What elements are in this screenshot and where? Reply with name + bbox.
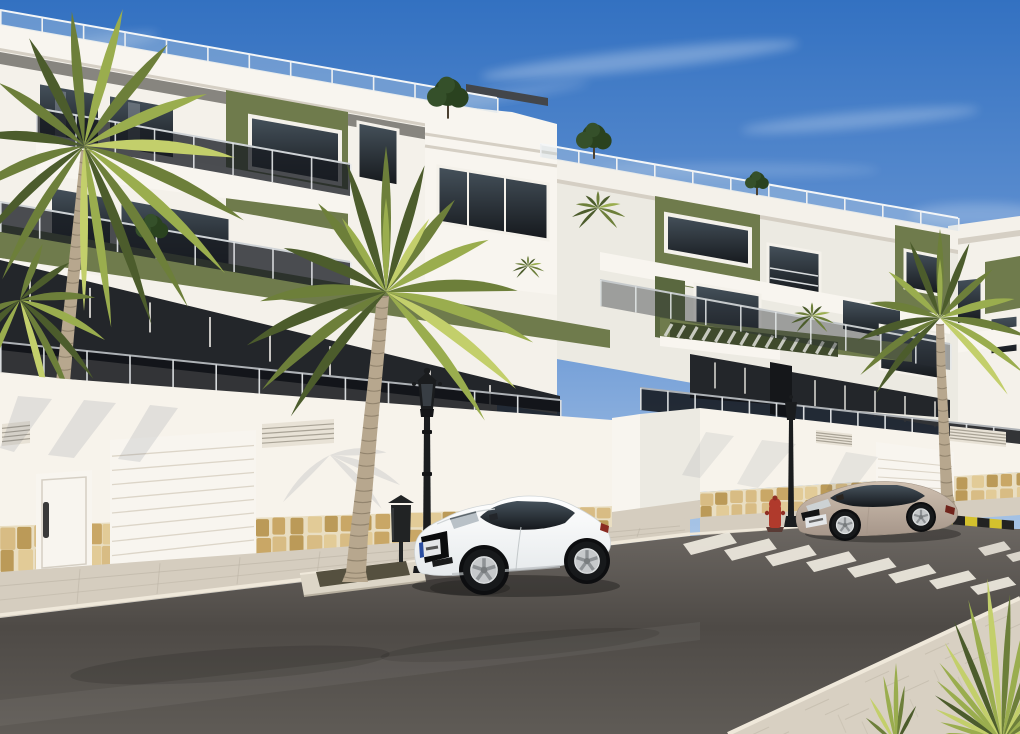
rendered-photo	[0, 0, 1020, 734]
pedestrian-door	[36, 470, 92, 574]
scene-image	[0, 0, 1020, 734]
